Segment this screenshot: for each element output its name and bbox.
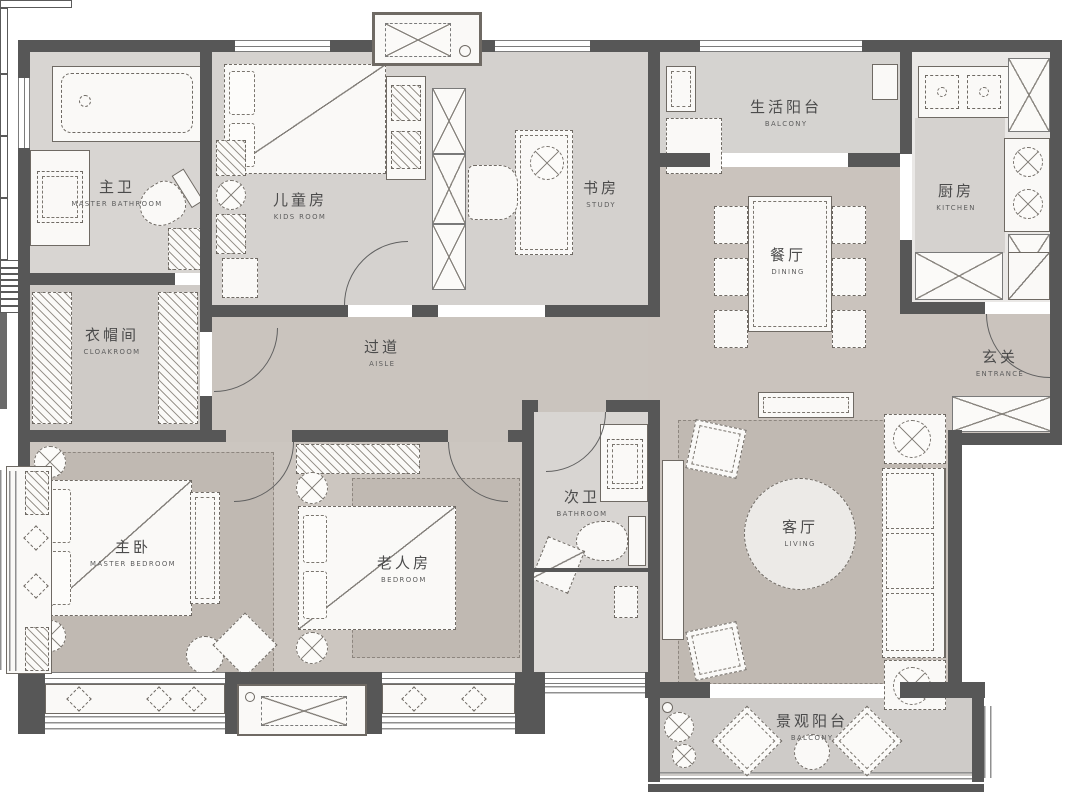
- wall-masterbath-cloak: [18, 273, 175, 285]
- elder-bedroom-door-arc: [448, 442, 508, 502]
- wall-stub-bl-4: [515, 672, 545, 734]
- toilet-bowl: [576, 521, 628, 561]
- label-zh: 生活阳台: [750, 96, 822, 117]
- kids-shelf: [216, 214, 246, 254]
- balcony-top-window: [700, 40, 862, 52]
- label-zh: 主卫: [99, 176, 135, 197]
- tv-cabinet: [662, 460, 684, 640]
- room-label-view-balcony: 景观阳台 BALCONY: [776, 710, 848, 742]
- plant-icon: [216, 180, 246, 210]
- pillow: [303, 571, 327, 619]
- bay-window-plant: [25, 471, 49, 515]
- pillow: [229, 71, 255, 115]
- label-zh: 主卧: [115, 536, 151, 557]
- wall-balcony-dining-l: [660, 153, 710, 167]
- balcony-rail: [660, 772, 972, 784]
- sink-icon: [607, 439, 643, 489]
- wall-living-right: [948, 430, 962, 698]
- kitchen-base-cabinet: [915, 252, 1003, 300]
- tv-icon: [0, 313, 7, 409]
- water-heater: [872, 64, 898, 100]
- wall-kids-bottom: [212, 305, 348, 317]
- bathtub: [52, 66, 204, 142]
- label-en: BEDROOM: [381, 575, 427, 583]
- nightstand-plant: [296, 632, 328, 664]
- cloakroom-door-leaf: [0, 0, 72, 8]
- nightstand-plant: [296, 472, 328, 504]
- label-en: STUDY: [586, 200, 616, 208]
- plant-icon: [893, 420, 931, 458]
- balcony-plant: [664, 712, 694, 742]
- room-label-life-balcony: 生活阳台 BALCONY: [750, 96, 822, 128]
- shoe-cabinet: [952, 396, 1052, 432]
- wall-bath-top-stub: [522, 400, 538, 412]
- kids-shelf: [216, 140, 246, 176]
- label-zh: 玄关: [982, 346, 1018, 367]
- label-zh: 厨房: [938, 180, 974, 201]
- balcony-drain: [662, 702, 673, 713]
- sink-drain: [937, 87, 947, 97]
- kids-door-arc: [344, 241, 408, 305]
- dining-chair: [832, 310, 866, 348]
- wall-right: [1050, 40, 1062, 445]
- label-zh: 次卫: [564, 486, 600, 507]
- elderbed-bottom-window: [382, 672, 515, 684]
- dining-chair: [832, 258, 866, 296]
- kitchen-cabinet: [1008, 58, 1050, 132]
- room-label-cloakroom: 衣帽间 CLOAKROOM: [81, 324, 143, 356]
- masterbed-bottom-window: [45, 672, 225, 684]
- wall-living-balcony-r: [900, 682, 985, 698]
- label-zh: 客厅: [782, 516, 818, 537]
- wall-kitchen-bottom: [900, 302, 985, 314]
- wall-entrance-bottom: [962, 433, 1062, 445]
- label-zh: 餐厅: [770, 244, 806, 265]
- ac-platform-bottom: [237, 684, 367, 736]
- pillow: [303, 515, 327, 563]
- wall-corridor-bedrooms-1: [18, 430, 226, 442]
- bed-bench: [190, 492, 220, 604]
- master-bedroom-door-leaf: [0, 74, 8, 136]
- ac-drain: [245, 692, 255, 702]
- wall-bath-top: [606, 400, 648, 412]
- bathroom-shelf: [168, 228, 202, 270]
- wall-kitchen-left-top: [900, 52, 912, 154]
- sofa-seat: [886, 473, 934, 529]
- kids-top-window: [235, 40, 330, 52]
- wardrobe-elder: [296, 444, 420, 474]
- masterbath-left-window: [18, 78, 30, 148]
- dining-chair: [832, 206, 866, 244]
- masterbed-planter-sill: [45, 716, 225, 734]
- bathtub-drain: [79, 95, 91, 107]
- label-zh: 过道: [364, 336, 400, 357]
- label-zh: 老人房: [377, 552, 431, 573]
- elderbed-planter-sill: [382, 716, 515, 734]
- floor-plan: 主卫 MASTER BATHROOM 衣帽间 CLOAKROOM 儿童房 KID…: [0, 0, 1080, 794]
- room-label-study: 书房 STUDY: [583, 177, 619, 209]
- room-label-master-bathroom: 主卫 MASTER BATHROOM: [67, 176, 166, 208]
- wall-kids-bottom-2: [412, 305, 438, 317]
- room-label-dining: 餐厅 DINING: [770, 244, 806, 276]
- label-zh: 衣帽间: [85, 324, 139, 345]
- shower-partition: [534, 568, 648, 572]
- wardrobe-right: [158, 292, 198, 424]
- bay-window-cushion: [23, 573, 48, 598]
- label-zh: 儿童房: [273, 189, 327, 210]
- sofa-seat: [886, 533, 934, 589]
- ac-platform-top: [372, 12, 482, 66]
- room-label-kids: 儿童房 KIDS ROOM: [271, 189, 328, 221]
- books: [391, 85, 421, 121]
- cloakroom-door-arc: [214, 328, 278, 392]
- balcony-plant: [672, 744, 696, 768]
- wall-viewbalcony-left: [648, 698, 660, 782]
- bay-window-cushion: [23, 525, 48, 550]
- label-en: ENTRANCE: [976, 369, 1024, 377]
- kids-door-leaf: [0, 8, 8, 74]
- ac-unit: [261, 696, 347, 726]
- bath-bottom-window: [545, 672, 645, 684]
- sink-drain: [979, 87, 989, 97]
- wall-bath-living: [648, 400, 660, 684]
- wall-bath-left: [522, 400, 534, 684]
- label-en: KIDS ROOM: [274, 212, 326, 220]
- label-en: BALCONY: [791, 733, 834, 741]
- label-zh: 景观阳台: [776, 710, 848, 731]
- shower-head: [614, 586, 638, 618]
- ac-unit: [385, 23, 451, 57]
- balcony-rail-side: [984, 706, 996, 778]
- sofa: [882, 468, 946, 658]
- desk-chair: [468, 165, 518, 220]
- label-zh: 书房: [583, 177, 619, 198]
- wall-study-bottom: [545, 305, 660, 317]
- bookshelf: [432, 88, 466, 154]
- bathroom-door-arc: [546, 412, 606, 472]
- room-label-kitchen: 厨房 KITCHEN: [935, 180, 978, 212]
- books: [391, 131, 421, 169]
- bookshelf: [432, 154, 466, 224]
- room-label-second-bathroom: 次卫 BATHROOM: [554, 486, 609, 518]
- toilet-tank: [628, 516, 646, 566]
- label-en: BALCONY: [765, 119, 808, 127]
- kids-nightstand: [222, 258, 258, 298]
- bath-window-sill: [545, 686, 645, 698]
- sofa-seat: [886, 593, 934, 651]
- wall-corridor-bedrooms-3: [508, 430, 522, 442]
- label-en: KITCHEN: [936, 203, 976, 211]
- wall-viewbalcony-right: [972, 698, 984, 782]
- ac-drain: [459, 45, 471, 57]
- dining-chair: [714, 206, 748, 244]
- label-en: AISLE: [369, 359, 395, 367]
- label-en: CLOAKROOM: [83, 347, 140, 355]
- kitchen-sink-counter: [918, 66, 1010, 118]
- masterbed-bay-window: [6, 466, 52, 674]
- wall-study-right: [648, 52, 660, 317]
- console-table: [758, 392, 854, 418]
- wall-balcony-dining-r: [848, 153, 900, 167]
- label-en: DINING: [771, 267, 804, 275]
- dining-chair: [714, 310, 748, 348]
- armchair: [685, 419, 746, 479]
- elder-bedroom-door-leaf: [0, 136, 8, 198]
- room-label-elder-bedroom: 老人房 BEDROOM: [377, 552, 431, 584]
- kids-bed: [224, 64, 386, 174]
- bookshelf: [432, 224, 466, 290]
- armchair: [685, 621, 746, 681]
- label-en: MASTER BATHROOM: [71, 199, 162, 207]
- bathroom-door-leaf: [0, 198, 8, 260]
- wardrobe-left: [32, 292, 72, 424]
- stove: [1004, 138, 1050, 232]
- wall-stub-bl-3: [366, 672, 382, 734]
- desk-globe: [530, 146, 564, 180]
- room-label-living: 客厅 LIVING: [782, 516, 818, 548]
- wall-viewbalcony-bottom: [648, 784, 984, 792]
- room-label-entrance: 玄关 ENTRANCE: [974, 346, 1027, 378]
- burner-icon: [1013, 147, 1043, 177]
- fridge: [1008, 252, 1050, 300]
- bay-window-glass: [9, 471, 19, 671]
- label-en: MASTER BEDROOM: [90, 559, 176, 567]
- label-en: BATHROOM: [557, 509, 608, 517]
- wall-stub-bl-1: [18, 672, 45, 734]
- study-top-window: [495, 40, 590, 52]
- wall-corridor-bedrooms-2: [292, 430, 448, 442]
- sofa-side-table: [884, 414, 946, 464]
- toilet-second: [576, 516, 648, 566]
- label-en: LIVING: [784, 539, 815, 547]
- wall-stub-bl-5: [645, 672, 660, 698]
- kids-desk: [386, 76, 426, 180]
- burner-icon: [1013, 189, 1043, 219]
- bay-window-plant: [25, 627, 49, 671]
- room-label-aisle: 过道 AISLE: [364, 336, 400, 368]
- room-label-master-bedroom: 主卧 MASTER BEDROOM: [86, 536, 179, 568]
- dining-chair: [714, 258, 748, 296]
- balcony-sink: [666, 66, 696, 112]
- wall-masterbath-kids: [200, 52, 212, 332]
- master-bedroom-door-arc: [234, 442, 294, 502]
